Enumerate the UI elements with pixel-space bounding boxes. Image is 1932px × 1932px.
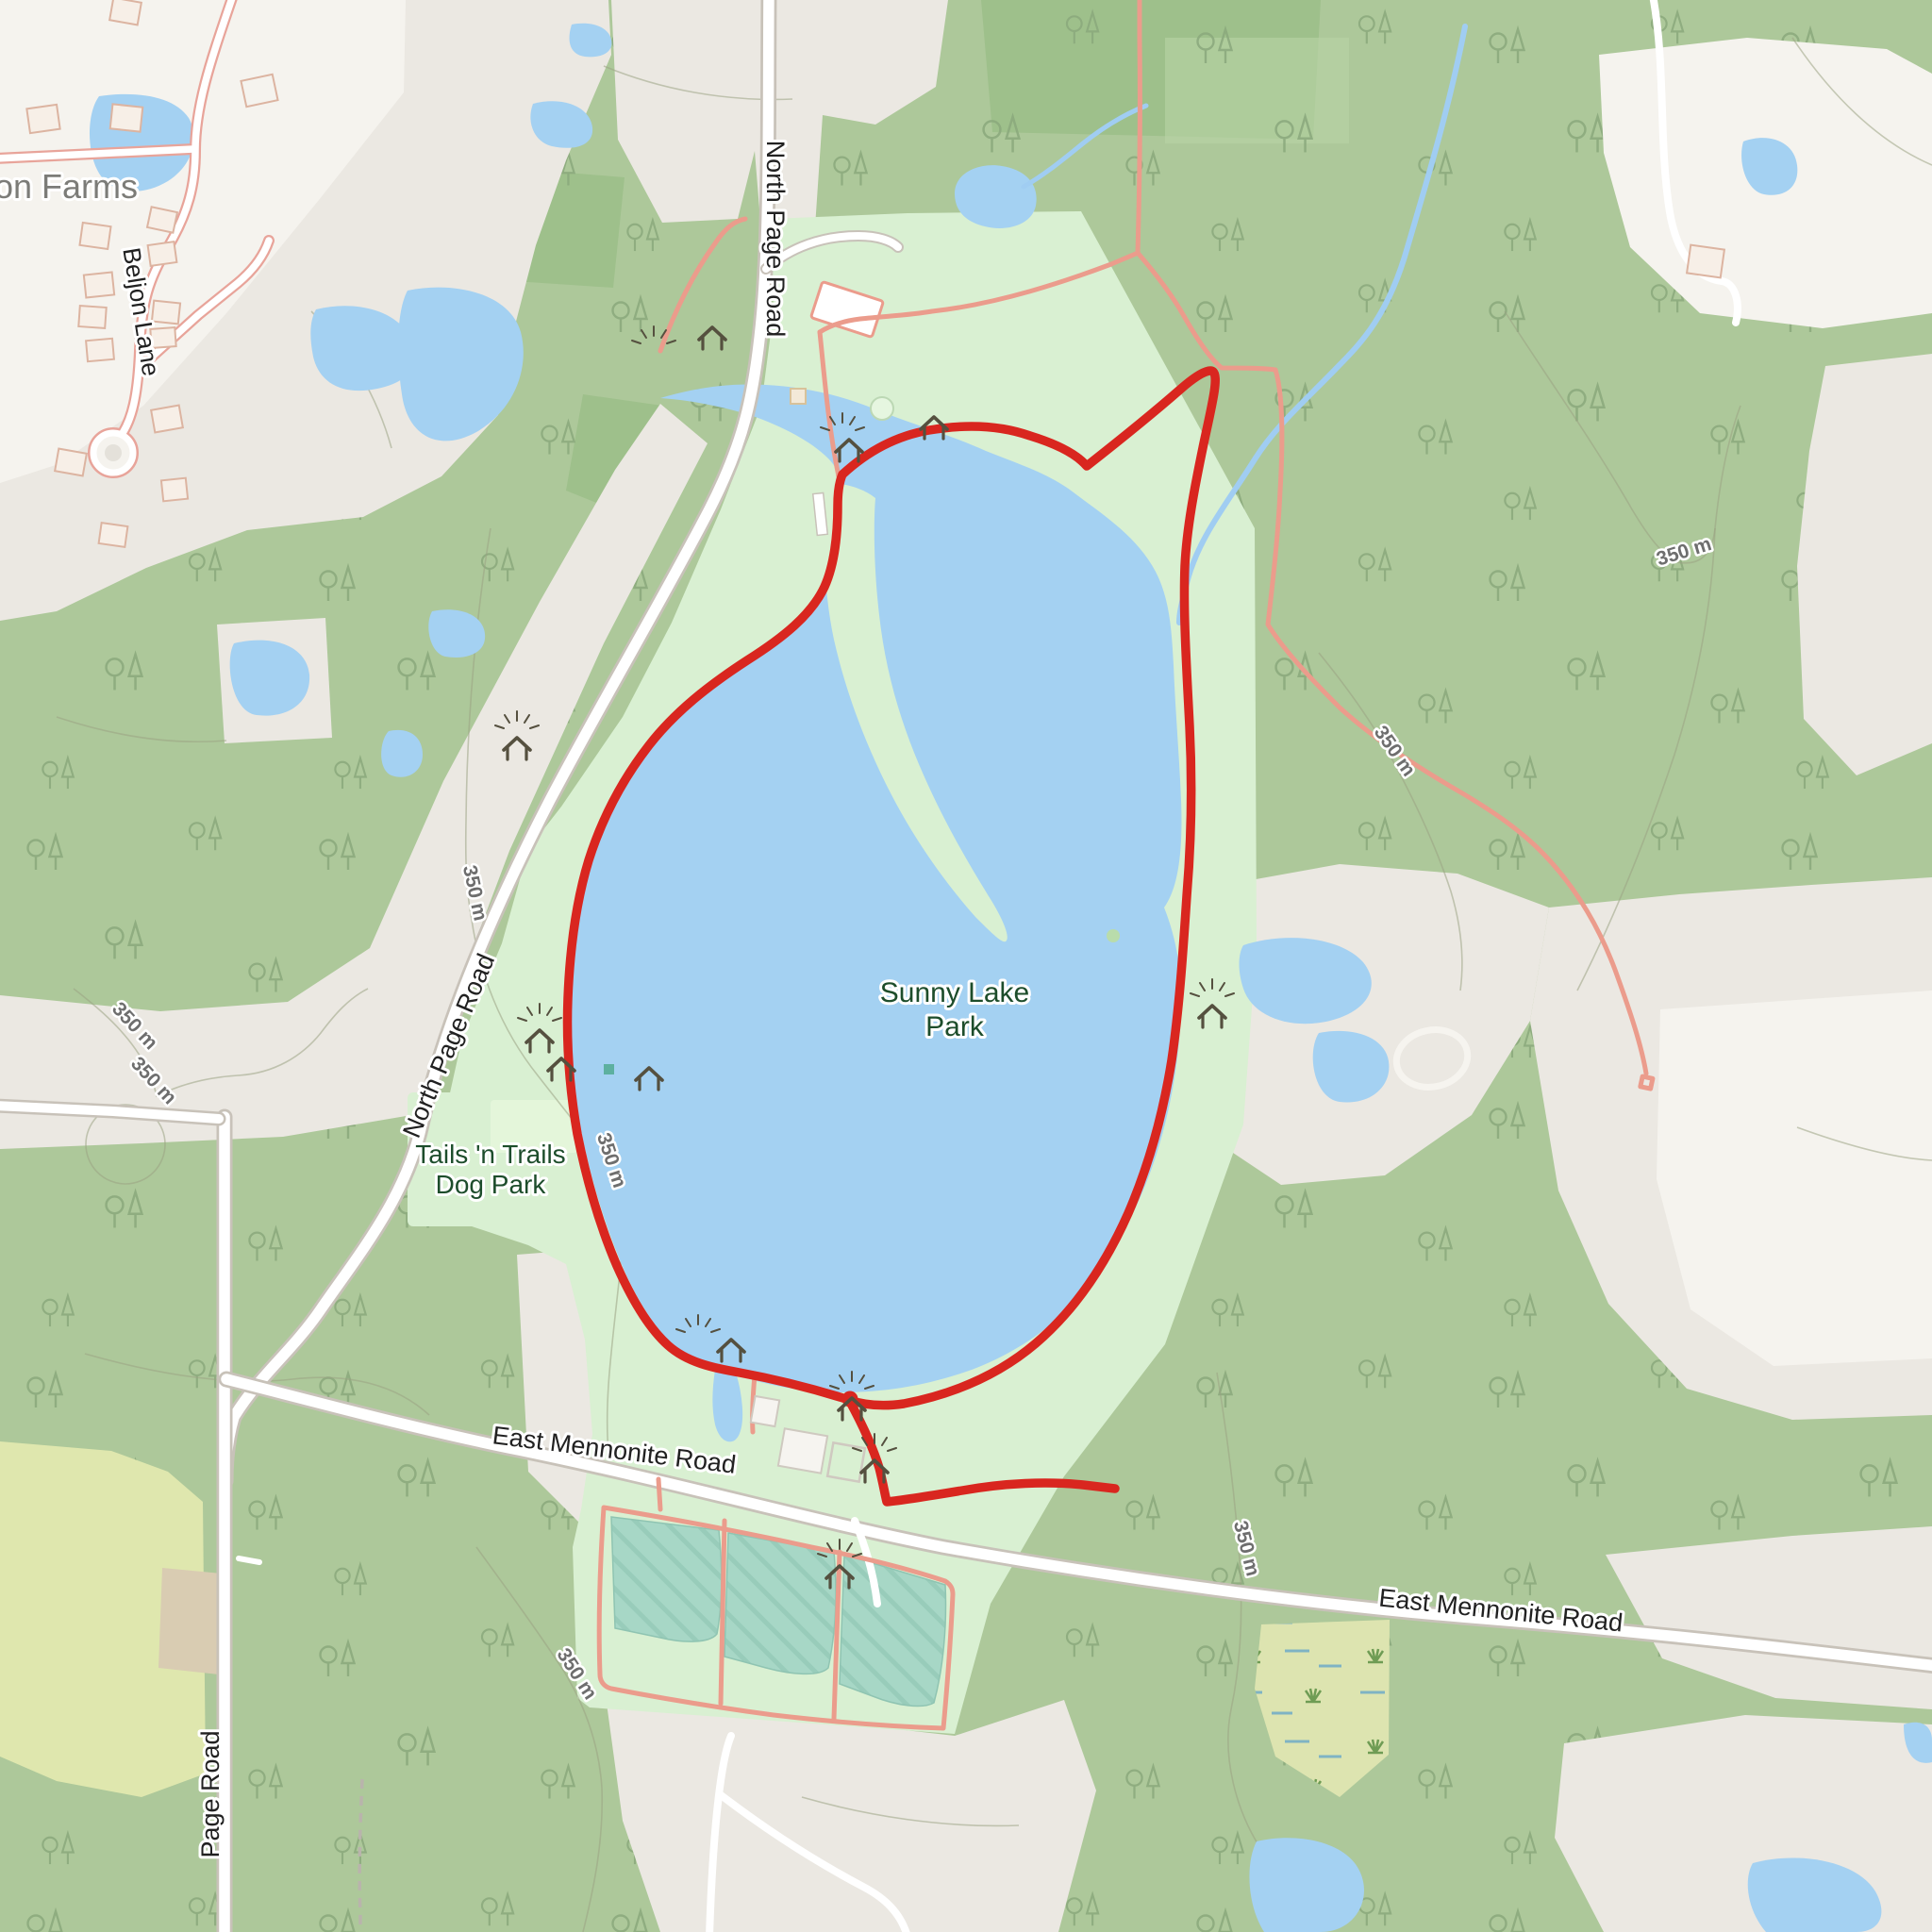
playground-icon [604,1064,614,1074]
park-label-sunny-lake-2: Park [925,1011,985,1042]
park-label-dog-park-1: Tails 'n Trails [415,1140,565,1169]
farmland [0,1441,222,1797]
road-label-north-page-1: North Page Road [761,141,790,338]
road-label-page: Page Road [196,1730,225,1857]
map-canvas[interactable]: on Farms Beljon Lane North Page Road Nor… [0,0,1932,1932]
place-label-farms: on Farms [0,167,138,206]
park-label-dog-park-2: Dog Park [436,1170,547,1199]
lake-islet [1107,929,1120,942]
park-label-sunny-lake-1: Sunny Lake [880,977,1029,1008]
amenity-square [791,389,806,404]
